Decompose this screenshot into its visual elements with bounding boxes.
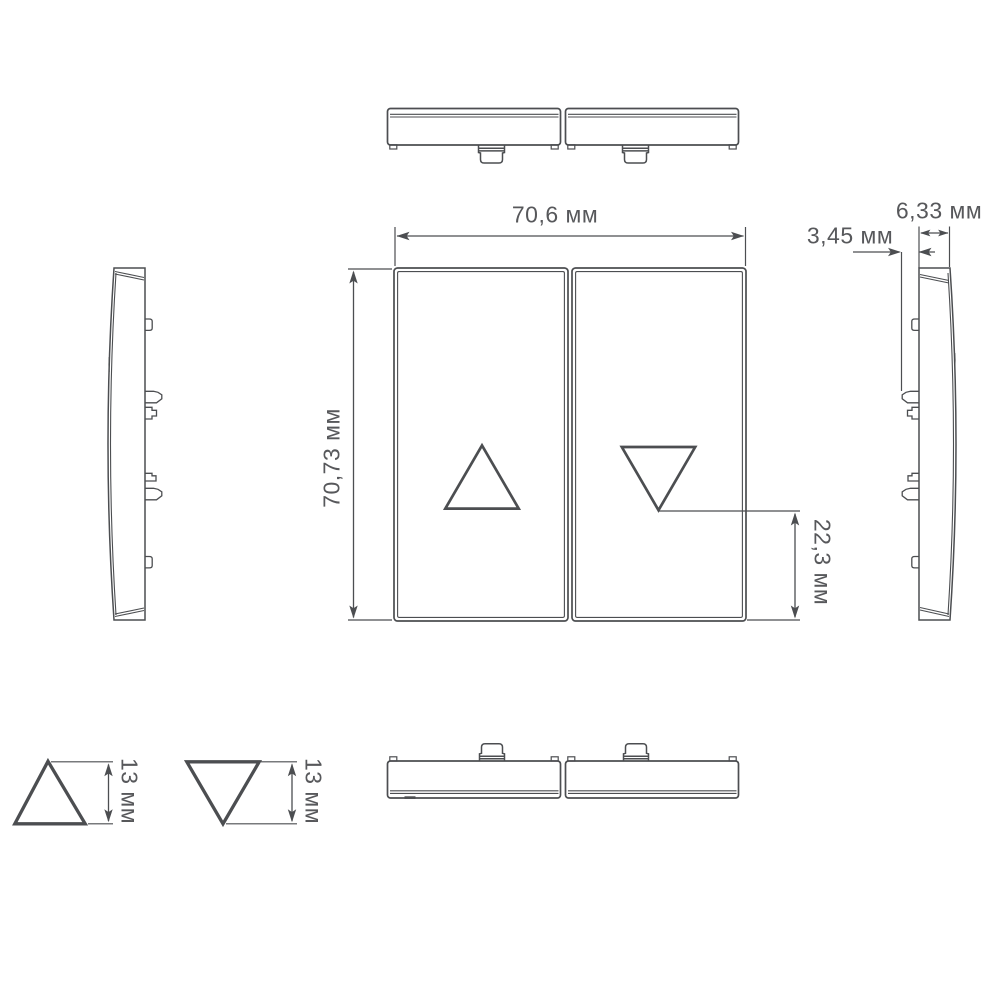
down-rocker-button — [572, 268, 746, 621]
bottom-view — [388, 744, 739, 799]
down-triangle-icon — [622, 447, 695, 510]
right-side-view — [902, 268, 956, 620]
mounting-clip — [480, 744, 505, 761]
up-triangle-height-dimension — [51, 762, 113, 824]
height-dimension — [348, 269, 392, 620]
mounting-clip — [623, 146, 649, 164]
technical-drawing-page: 70,6 мм 70,73 мм 3,45 мм 6,33 мм 22,3 мм… — [0, 0, 1000, 1000]
top-view — [388, 109, 739, 164]
triangle-detail-views — [15, 761, 297, 824]
up-triangle-height-label: 13 мм — [116, 758, 143, 824]
down-triangle-icon — [187, 762, 259, 824]
bottom-view-right-rocker — [566, 761, 739, 798]
front-view — [394, 268, 746, 621]
offset-dimension — [659, 511, 800, 620]
down-triangle-height-label: 13 мм — [300, 758, 327, 824]
clip-depth-dimension — [853, 248, 935, 391]
width-dimension — [395, 227, 746, 266]
panel-depth-dimension — [919, 227, 950, 269]
up-triangle-icon — [15, 761, 85, 824]
mounting-clip — [479, 146, 505, 164]
panel-depth-dimension-label: 6,33 мм — [896, 198, 982, 225]
up-triangle-icon — [445, 445, 518, 508]
mounting-clip — [624, 744, 649, 761]
bottom-view-left-rocker — [388, 761, 561, 798]
drawing-canvas — [0, 0, 1000, 1000]
clip-depth-dimension-label: 3,45 мм — [807, 223, 893, 250]
width-dimension-label: 70,6 мм — [512, 202, 598, 229]
offset-dimension-label: 22,3 мм — [809, 519, 836, 605]
left-side-view — [108, 268, 162, 620]
height-dimension-label: 70,73 мм — [319, 408, 346, 508]
down-triangle-height-dimension — [226, 762, 297, 824]
